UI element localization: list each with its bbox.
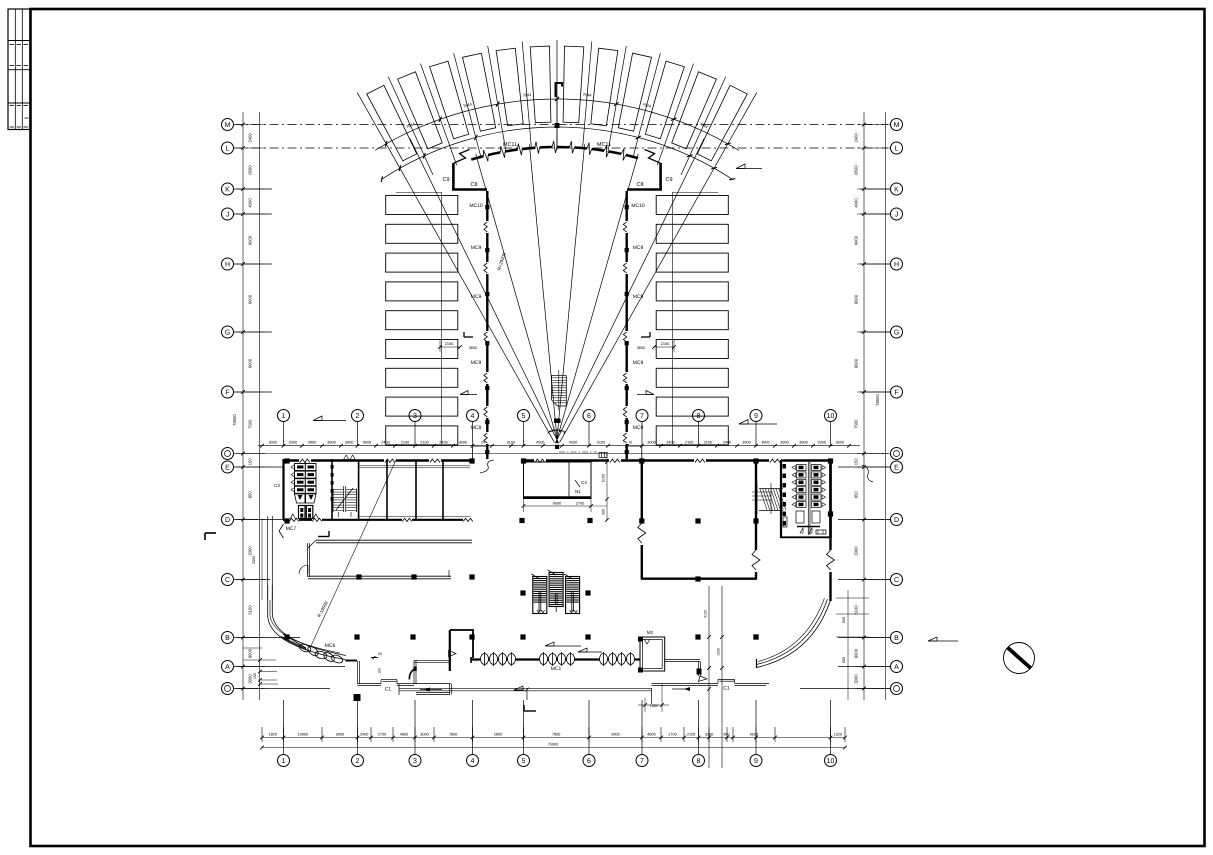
svg-text:650: 650 [842,657,846,663]
svg-text:3900: 3900 [611,733,619,737]
svg-text:3900: 3900 [327,440,335,444]
svg-text:MC8: MC8 [471,425,482,431]
svg-text:4000: 4000 [854,198,859,208]
svg-text:F: F [894,390,898,397]
svg-text:5100: 5100 [854,605,859,615]
svg-text:4800: 4800 [400,733,408,737]
svg-text:5: 5 [522,413,526,420]
svg-text:L: L [895,146,899,153]
svg-text:2100: 2100 [704,440,712,444]
svg-text:10: 10 [827,413,835,420]
svg-text:H: H [225,262,230,269]
svg-text:C: C [225,577,230,584]
svg-text:10800: 10800 [298,733,309,737]
svg-text:7800: 7800 [552,733,560,737]
svg-text:N1: N1 [575,489,581,494]
svg-text:8500: 8500 [248,165,253,175]
svg-text:78500: 78500 [875,394,880,406]
svg-text:3300: 3300 [854,546,859,556]
svg-text:L: L [226,146,230,153]
svg-text:2100: 2100 [420,440,428,444]
svg-text:150: 150 [248,458,253,466]
svg-text:2100: 2100 [661,342,669,346]
svg-text:8000: 8000 [248,648,253,658]
svg-text:3000: 3000 [269,440,277,444]
svg-text:3100: 3100 [507,440,515,444]
svg-text:6: 6 [587,413,591,420]
svg-text:2100: 2100 [445,342,453,346]
svg-text:4500: 4500 [536,440,544,444]
svg-text:J: J [226,212,230,219]
svg-text:3300: 3300 [252,556,256,564]
svg-text:E: E [225,465,230,472]
svg-text:900: 900 [723,733,729,737]
svg-text:1500: 1500 [717,648,721,656]
svg-text:75900: 75900 [548,743,559,747]
svg-text:2400: 2400 [854,132,859,142]
svg-text:1: 1 [282,758,286,765]
svg-text:M: M [894,122,900,129]
svg-text:9: 9 [754,758,758,765]
svg-text:8000: 8000 [248,294,253,304]
svg-text:3000: 3000 [248,674,253,684]
svg-text:4500: 4500 [569,440,577,444]
svg-text:78500: 78500 [232,414,237,426]
svg-text:2700: 2700 [576,502,584,506]
svg-text:MC10: MC10 [631,203,645,209]
svg-text:2400: 2400 [439,440,447,444]
svg-text:2100: 2100 [401,440,409,444]
svg-text:J: J [895,212,899,219]
svg-text:MC9: MC9 [471,360,482,366]
svg-text:1: 1 [282,413,286,420]
svg-text:D: D [225,517,230,524]
svg-text:8000: 8000 [248,358,253,368]
svg-text:K: K [225,187,230,194]
svg-text:9000: 9000 [750,733,758,737]
svg-text:8000: 8000 [854,358,859,368]
svg-text:8500: 8500 [854,165,859,175]
svg-text:8: 8 [697,413,701,420]
svg-text:M2: M2 [647,630,654,635]
svg-text:MC7: MC7 [286,526,297,532]
svg-text:8: 8 [697,758,701,765]
svg-text:7644: 7644 [522,92,532,98]
svg-text:C1: C1 [723,686,730,692]
svg-text:3000: 3000 [647,440,655,444]
svg-text:MC11: MC11 [503,142,517,148]
svg-text:4: 4 [471,413,475,420]
svg-text:1820: 1820 [269,733,277,737]
svg-text:2: 2 [356,758,360,765]
svg-text:3000: 3000 [420,733,428,737]
svg-text:2400: 2400 [248,132,253,142]
svg-text:3900: 3900 [780,440,788,444]
svg-text:4800: 4800 [647,733,655,737]
svg-text:5100: 5100 [602,474,606,482]
svg-text:8000: 8000 [854,648,859,658]
svg-text:850: 850 [854,491,859,499]
svg-text:3: 3 [413,758,417,765]
svg-text:D: D [894,517,899,524]
svg-text:7: 7 [640,413,644,420]
svg-text:2700: 2700 [668,733,676,737]
svg-text:2700: 2700 [378,733,386,737]
svg-text:3900: 3900 [336,733,344,737]
svg-text:9: 9 [754,413,758,420]
svg-text:C: C [894,577,899,584]
svg-text:C8: C8 [636,182,643,188]
svg-text:C3: C3 [274,483,280,488]
svg-text:8000: 8000 [854,294,859,304]
svg-text:5: 5 [522,758,526,765]
svg-text:MC9: MC9 [633,294,644,300]
svg-text:6000: 6000 [553,502,561,506]
svg-text:MC6: MC6 [325,643,336,649]
svg-text:2400: 2400 [723,440,731,444]
svg-text:C9: C9 [442,177,449,183]
svg-text:A: A [894,664,899,671]
svg-text:MC8: MC8 [633,425,644,431]
svg-text:F: F [225,390,229,397]
svg-text:7500: 7500 [248,419,253,429]
svg-text:1800: 1800 [650,704,658,708]
svg-text:3900: 3900 [799,440,807,444]
svg-text:G: G [894,330,899,337]
svg-text:G: G [225,330,230,337]
svg-text:MC9: MC9 [471,245,482,251]
svg-text:3100: 3100 [597,440,605,444]
svg-text:2400: 2400 [360,733,368,737]
svg-text:3900: 3900 [345,440,353,444]
svg-text:4000: 4000 [248,198,253,208]
svg-text:9000: 9000 [248,235,253,245]
svg-text:2000: 2000 [289,440,297,444]
svg-text:4: 4 [471,758,475,765]
svg-text:7: 7 [640,758,644,765]
svg-text:B: B [894,635,899,642]
svg-text:50: 50 [378,652,382,656]
svg-text:2100: 2100 [685,440,693,444]
svg-text:MC1: MC1 [551,666,562,672]
svg-text:7800: 7800 [449,733,457,737]
svg-text:6: 6 [587,758,591,765]
svg-text:2: 2 [356,413,360,420]
svg-text:E: E [894,465,899,472]
svg-text:2000: 2000 [818,440,826,444]
svg-text:2400: 2400 [666,440,674,444]
svg-text:MC9: MC9 [633,360,644,366]
svg-text:850: 850 [248,491,253,499]
svg-text:7500: 7500 [854,419,859,429]
svg-text:9000: 9000 [854,235,859,245]
svg-text:150: 150 [253,673,257,679]
svg-text:3600: 3600 [637,346,645,350]
svg-text:3000: 3000 [836,440,844,444]
svg-text:2100: 2100 [687,733,695,737]
svg-text:C8: C8 [470,182,477,188]
svg-text:10: 10 [827,758,835,765]
svg-text:500: 500 [842,617,846,623]
svg-text:3600: 3600 [469,346,477,350]
svg-text:3100: 3100 [704,610,708,618]
svg-text:A: A [225,664,230,671]
svg-text:MC9: MC9 [471,294,482,300]
svg-text:MC9: MC9 [633,245,644,251]
svg-text:MC10: MC10 [469,203,483,209]
svg-text:H: H [894,262,899,269]
svg-text:MC11: MC11 [597,142,611,148]
svg-text:M: M [225,122,231,129]
svg-text:7644: 7644 [583,92,593,98]
svg-text:C4: C4 [581,480,587,485]
svg-text:3900: 3900 [308,440,316,444]
svg-text:3300: 3300 [248,546,253,556]
svg-text:150: 150 [854,458,859,466]
svg-text:1320: 1320 [834,733,842,737]
svg-text:5100: 5100 [248,605,253,615]
svg-text:3000: 3000 [459,440,467,444]
svg-text:3000: 3000 [854,674,859,684]
svg-text:300: 300 [602,509,606,515]
svg-text:5800: 5800 [494,733,502,737]
svg-text:B: B [225,635,230,642]
svg-text:3900: 3900 [742,440,750,444]
svg-text:3900: 3900 [363,440,371,444]
svg-text:C1: C1 [385,687,392,693]
svg-text:3900: 3900 [761,440,769,444]
svg-text:K: K [894,187,899,194]
svg-text:150: 150 [378,668,382,674]
svg-text:3: 3 [413,413,417,420]
svg-text:C9: C9 [665,177,672,183]
